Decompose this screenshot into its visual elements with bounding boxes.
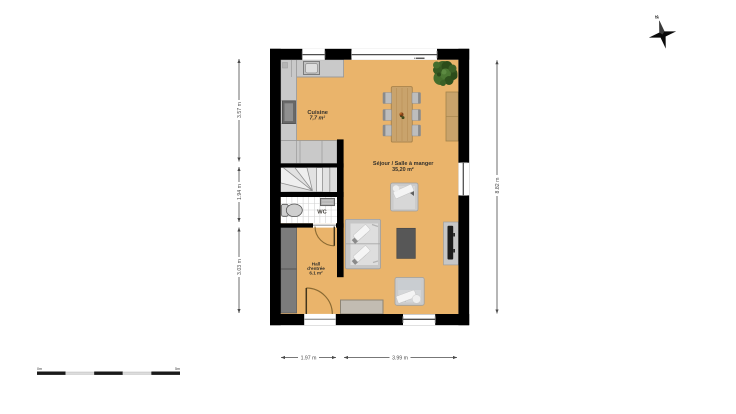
svg-text:6.1 m²: 6.1 m² [309, 271, 323, 276]
svg-text:5m: 5m [175, 367, 180, 371]
svg-text:1.94 m: 1.94 m [237, 184, 243, 200]
svg-text:3.57 m: 3.57 m [237, 102, 243, 118]
svg-text:0m: 0m [37, 367, 42, 371]
svg-text:8.82 m: 8.82 m [495, 178, 501, 194]
svg-text:3.03 m: 3.03 m [237, 259, 243, 275]
svg-text:WC: WC [317, 209, 326, 215]
svg-text:1.97 m: 1.97 m [301, 355, 317, 361]
svg-text:35,20 m²: 35,20 m² [392, 167, 414, 173]
svg-text:N: N [655, 14, 660, 21]
svg-text:3.99 m: 3.99 m [392, 355, 408, 361]
svg-text:7,7 m²: 7,7 m² [310, 116, 326, 122]
